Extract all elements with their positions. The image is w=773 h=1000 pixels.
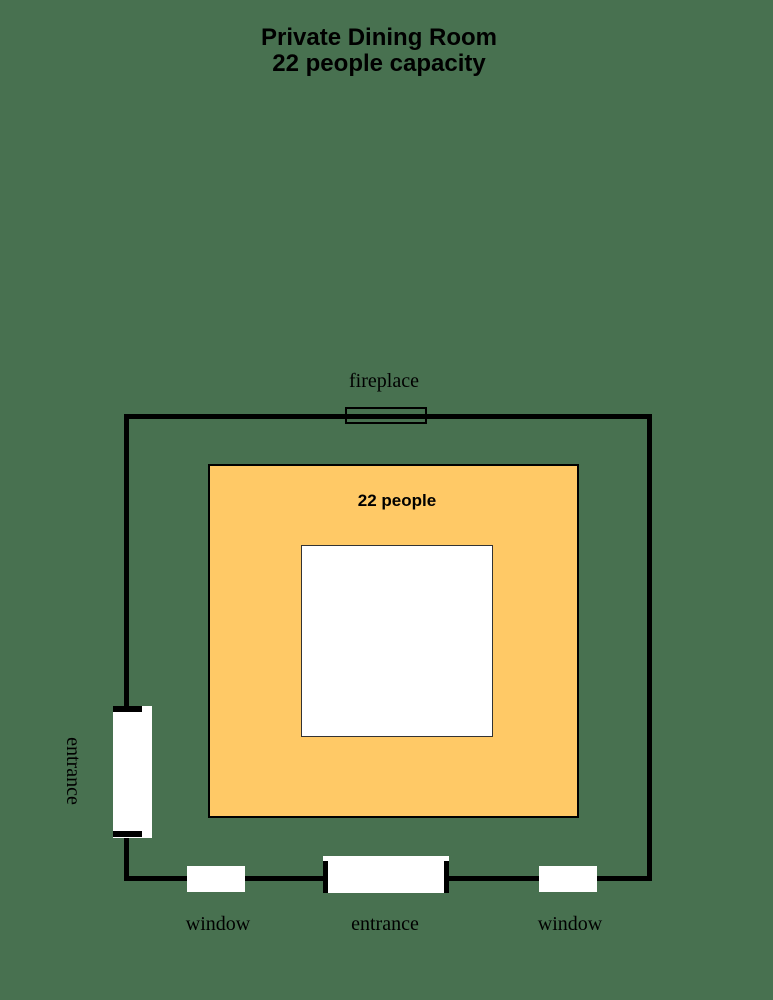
table-center-cutout (301, 545, 493, 737)
page-title-line2: 22 people capacity (0, 51, 758, 77)
fireplace-label: fireplace (284, 370, 484, 392)
page-title: Private Dining Room 22 people capacity (0, 25, 758, 77)
bottom-entrance-door (323, 856, 449, 893)
window-marker-left (187, 866, 245, 892)
bottom-entrance-jamb-right (444, 861, 449, 893)
left-entrance-label: entrance (63, 731, 83, 811)
left-entrance-door (113, 706, 152, 838)
window-label-right: window (470, 913, 670, 935)
capacity-label: 22 people (297, 491, 497, 511)
left-entrance-jamb-bottom (113, 831, 142, 837)
left-entrance-jamb-top (113, 706, 142, 712)
page-title-line1: Private Dining Room (0, 25, 758, 51)
floor-plan: Private Dining Room 22 people capacity f… (0, 0, 773, 1000)
fireplace-marker (345, 407, 427, 424)
bottom-entrance-jamb-left (323, 861, 328, 893)
bottom-entrance-label: entrance (285, 913, 485, 935)
window-marker-right (539, 866, 597, 892)
